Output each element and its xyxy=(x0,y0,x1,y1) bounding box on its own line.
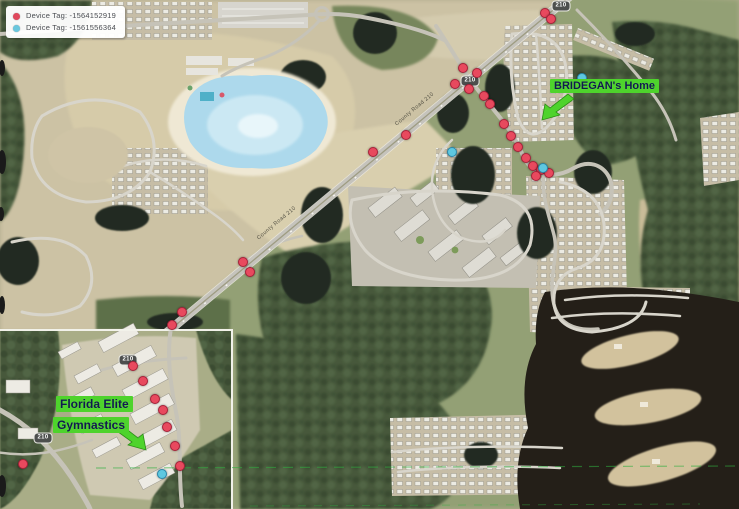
inset-map xyxy=(0,322,232,509)
device-marker-red xyxy=(485,99,495,109)
device-marker-red xyxy=(499,119,509,129)
device-marker-red xyxy=(472,68,482,78)
device-marker-red xyxy=(158,405,168,415)
device-marker-red xyxy=(368,147,378,157)
device-marker-red xyxy=(464,84,474,94)
device-marker-red xyxy=(506,131,516,141)
blue-dot-icon xyxy=(13,25,20,32)
device-marker-blue xyxy=(538,163,548,173)
florida-elite-label-line1: Florida Elite xyxy=(56,396,133,412)
device-marker-red xyxy=(238,257,248,267)
device-marker-red xyxy=(167,320,177,330)
device-tag-legend: Device Tag: -1564152919Device Tag: -1561… xyxy=(6,6,125,38)
device-marker-red xyxy=(458,63,468,73)
device-marker-red xyxy=(138,376,148,386)
device-marker-red xyxy=(175,461,185,471)
device-marker-red xyxy=(245,267,255,277)
device-marker-red xyxy=(18,459,28,469)
device-marker-red xyxy=(177,307,187,317)
florida-elite-label-line2: Gymnastics xyxy=(53,417,129,433)
device-marker-blue xyxy=(447,147,457,157)
legend-item: Device Tag: -1561556364 xyxy=(13,22,116,34)
device-marker-red xyxy=(162,422,172,432)
legend-item-label: Device Tag: -1561556364 xyxy=(26,22,116,34)
device-marker-red xyxy=(170,441,180,451)
device-marker-red xyxy=(531,171,541,181)
device-marker-red xyxy=(150,394,160,404)
device-marker-red xyxy=(401,130,411,140)
satellite-map-exhibit: Device Tag: -1564152919Device Tag: -1561… xyxy=(0,0,739,509)
route-shield-210: 210 xyxy=(552,1,571,12)
device-marker-red xyxy=(450,79,460,89)
device-marker-blue xyxy=(157,469,167,479)
bridegan-home-arrow-icon xyxy=(540,94,574,122)
device-marker-red xyxy=(513,142,523,152)
device-marker-red xyxy=(128,361,138,371)
device-marker-red xyxy=(546,14,556,24)
legend-item-label: Device Tag: -1564152919 xyxy=(26,10,116,22)
red-dot-icon xyxy=(13,13,20,20)
legend-item: Device Tag: -1564152919 xyxy=(13,10,116,22)
bridegan-home-label: BRIDEGAN's Home xyxy=(550,79,659,93)
route-shield-210: 210 xyxy=(34,433,53,444)
